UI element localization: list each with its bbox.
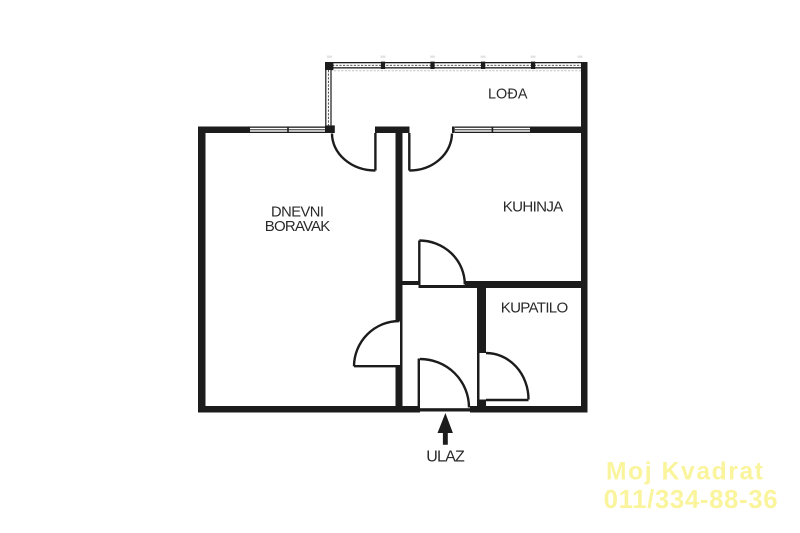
- svg-text:011/334-88-36: 011/334-88-36: [604, 486, 778, 514]
- svg-text:ULAZ: ULAZ: [426, 448, 465, 465]
- svg-text:BORAVAK: BORAVAK: [265, 218, 331, 235]
- svg-text:Moj Kvadrat: Moj Kvadrat: [606, 458, 763, 485]
- svg-text:KUHINJA: KUHINJA: [503, 198, 564, 215]
- svg-text:LOĐA: LOĐA: [488, 87, 528, 103]
- svg-text:KUPATILO: KUPATILO: [501, 299, 569, 316]
